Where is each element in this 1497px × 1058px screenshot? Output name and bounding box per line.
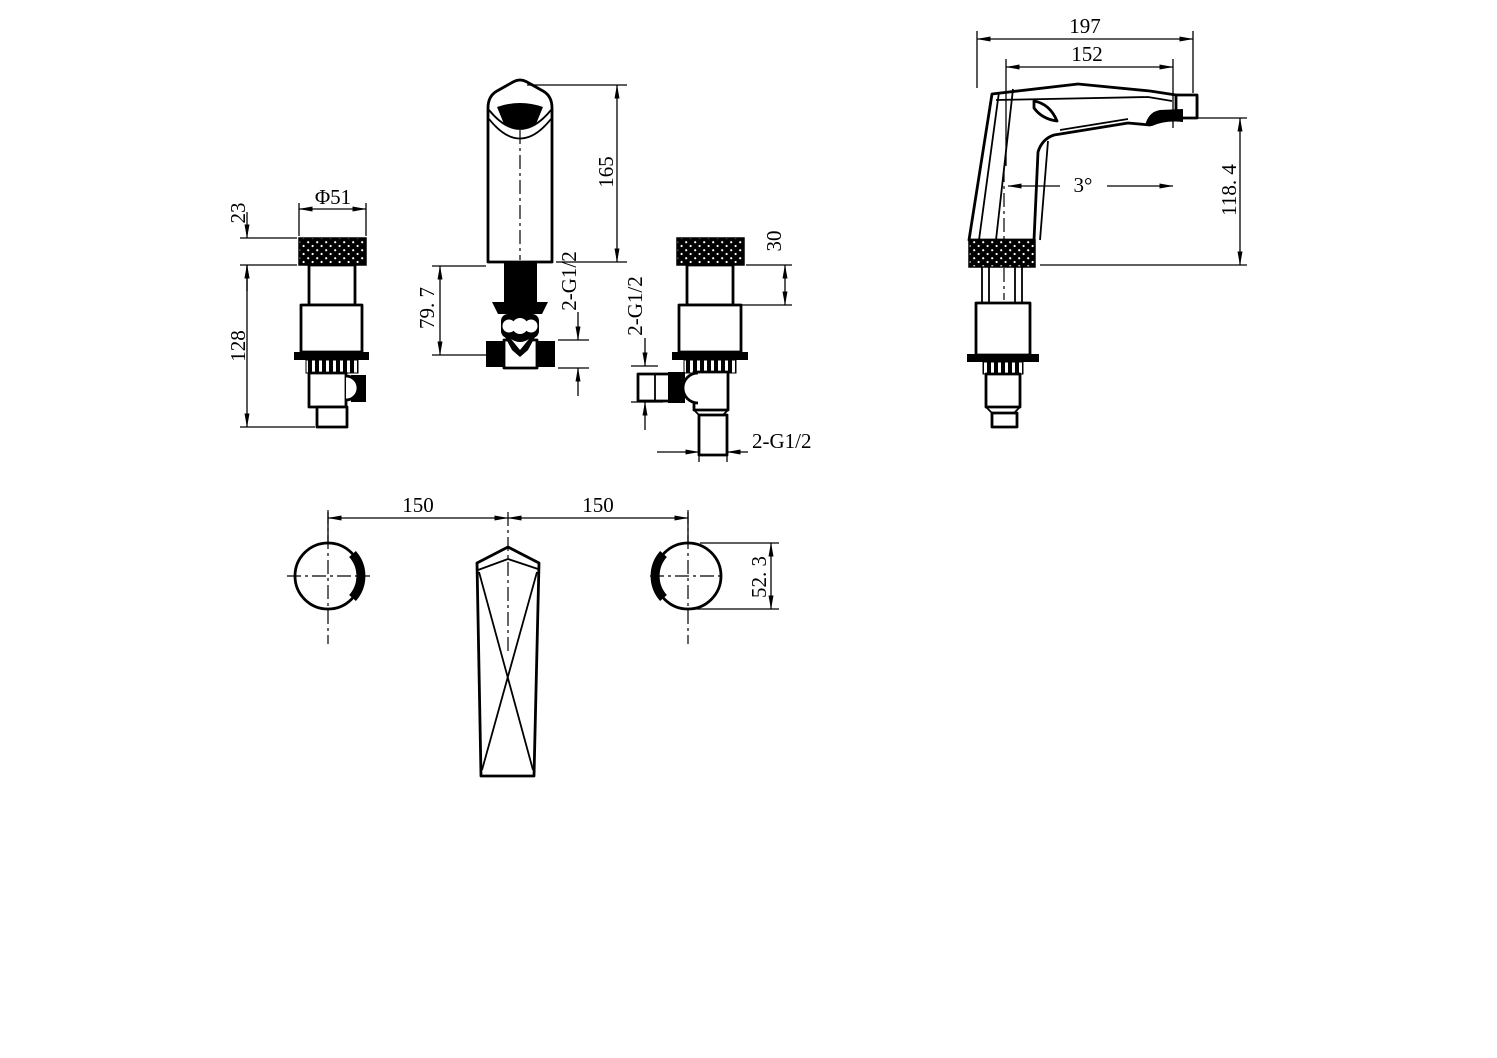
dim-label-outlet-height: 118. 4 <box>1217 164 1241 216</box>
thread-extension-lines <box>558 340 589 368</box>
technical-drawing-sheet: Φ51 23 128 165 79. 7 <box>0 0 1497 1058</box>
spout-mount-flange <box>492 302 548 314</box>
spout-underdeck-flange <box>967 354 1039 362</box>
valve-flange <box>672 352 748 360</box>
cap-height-extension-lines <box>240 238 297 265</box>
dim-label-reach: 152 <box>1071 42 1103 66</box>
dim-label-pitch-right: 150 <box>582 493 614 517</box>
dim-label-pitch-left: 150 <box>402 493 434 517</box>
neck-extension-lines <box>735 265 792 305</box>
tee-port-left <box>486 341 504 367</box>
valve-body <box>679 305 741 352</box>
valve-knurled-cap <box>677 238 744 265</box>
dim-label-spout-height: 165 <box>594 156 618 188</box>
handle-flange <box>294 352 369 360</box>
spout-side-view: 197 152 3° 118. 4 <box>967 14 1247 427</box>
plan-view: 150 150 52. 3 <box>287 493 779 776</box>
dim-label-side-port-thread: 2-G1/2 <box>623 276 647 336</box>
valve-inlet-tube <box>699 415 727 455</box>
spout-shank-tube-lines <box>982 267 1022 303</box>
dim-label-below-deck-depth: 79. 7 <box>415 287 439 329</box>
valve-side-port-arc <box>683 373 698 403</box>
handle-tailpiece <box>317 407 347 427</box>
valve-neck <box>687 265 733 305</box>
spout-underdeck-body <box>976 303 1030 355</box>
valve-side-port-tube <box>638 374 670 401</box>
spout-underdeck-lower <box>986 374 1020 407</box>
handle-side-port-arc <box>346 376 358 400</box>
tee-port-right <box>537 341 555 367</box>
dim-label-overall-length: 197 <box>1069 14 1101 38</box>
plan-handle-left <box>295 543 361 609</box>
spout-profile-outline <box>969 84 1197 240</box>
dim-label-outlet-angle: 3° <box>1074 173 1093 197</box>
dim-label-below-height: 128 <box>226 330 250 362</box>
dim-label-connector-thread: 2-G1/2 <box>557 251 581 311</box>
outlet-height-extension-lines <box>1040 118 1247 265</box>
dim-label-cap-height: 23 <box>226 203 250 224</box>
spout-facet-line-3 <box>1040 141 1048 240</box>
dim-label-handle-width: 52. 3 <box>747 556 771 598</box>
dim-label-inlet-thread: 2-G1/2 <box>752 429 812 453</box>
dim-label-neck-height: 30 <box>762 231 786 252</box>
nut-lobe-right <box>525 320 538 333</box>
faucet-dimension-drawing: Φ51 23 128 165 79. 7 <box>0 0 1497 1058</box>
handle-knurled-cap <box>299 238 366 265</box>
handle-front-view: Φ51 23 128 <box>226 185 369 427</box>
handle-body <box>301 305 362 352</box>
spout-base-knurl <box>969 240 1035 267</box>
spout-shank <box>504 262 537 302</box>
valve-lower-body <box>694 372 728 410</box>
dim-label-handle-diameter: Φ51 <box>315 185 351 209</box>
spout-underdeck-threads <box>983 362 1023 374</box>
handle-neck <box>309 265 355 305</box>
handle-lower-body <box>309 373 346 407</box>
spout-underdeck-tail <box>992 413 1017 427</box>
spout-front-view: 165 79. 7 2-G1/2 <box>415 80 627 396</box>
valve-side-view: 30 2-G1/2 2-G1/2 <box>623 231 812 463</box>
handle-thread-section <box>306 360 358 373</box>
